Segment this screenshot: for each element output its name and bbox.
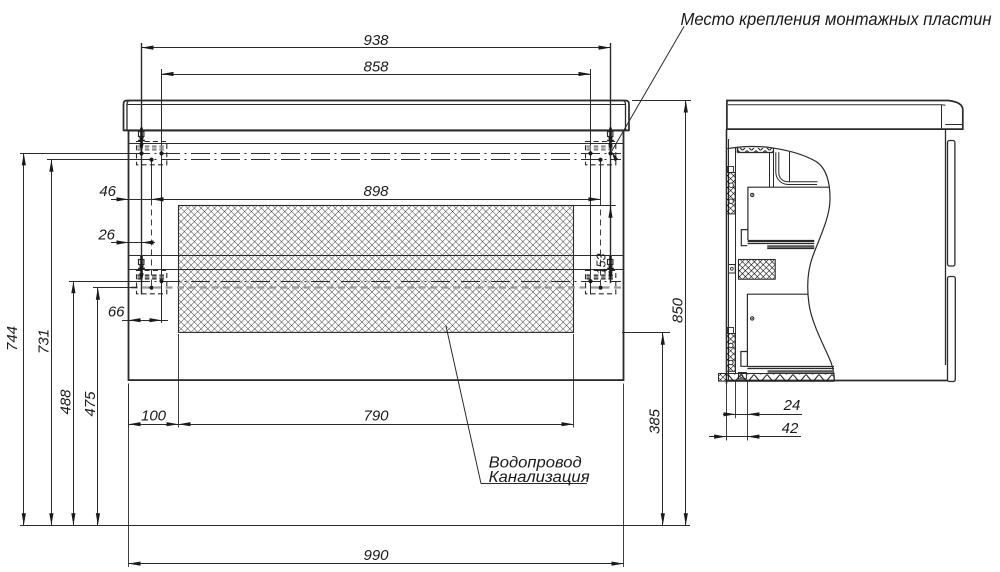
svg-text:475: 475 [82, 391, 99, 417]
svg-text:385: 385 [646, 408, 663, 434]
svg-text:898: 898 [363, 183, 389, 200]
svg-text:42: 42 [782, 420, 799, 437]
svg-text:100: 100 [141, 408, 167, 425]
svg-text:Канализация: Канализация [489, 469, 590, 486]
svg-text:744: 744 [4, 326, 21, 351]
svg-text:66: 66 [108, 303, 125, 320]
svg-text:153: 153 [595, 254, 609, 275]
svg-text:858: 858 [363, 59, 389, 76]
svg-text:24: 24 [783, 397, 801, 414]
svg-text:790: 790 [363, 408, 389, 425]
svg-text:488: 488 [57, 389, 74, 415]
svg-text:26: 26 [97, 227, 115, 244]
svg-text:938: 938 [363, 32, 389, 49]
svg-text:Место крепления монтажных плас: Место крепления монтажных пластин [681, 9, 992, 29]
svg-text:731: 731 [35, 329, 52, 354]
svg-text:990: 990 [363, 547, 389, 564]
svg-text:46: 46 [99, 183, 116, 200]
svg-text:850: 850 [669, 297, 686, 323]
